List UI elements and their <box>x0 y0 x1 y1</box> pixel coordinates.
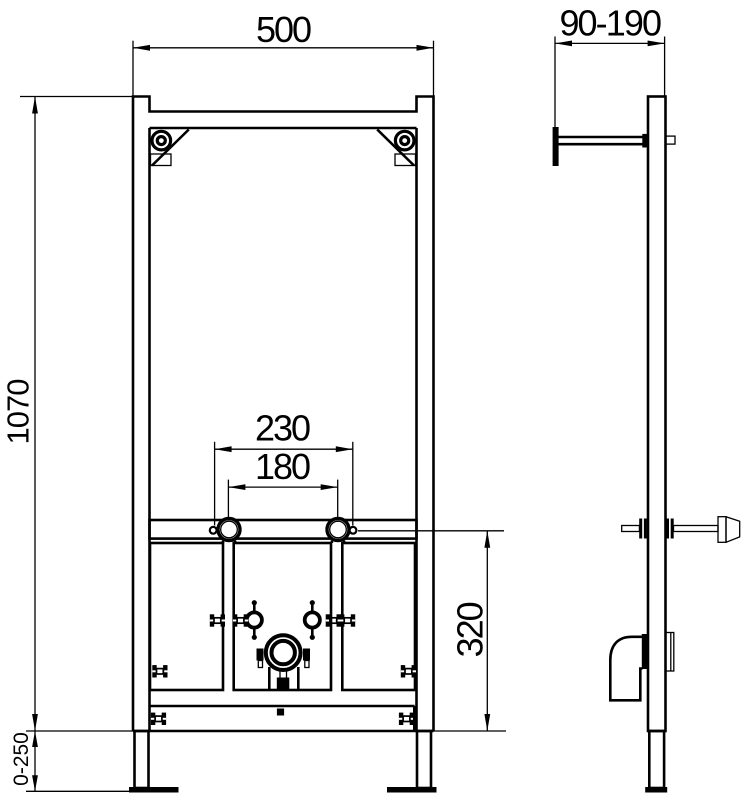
svg-text:180: 180 <box>255 446 310 487</box>
svg-text:90-190: 90-190 <box>559 3 661 44</box>
svg-text:1070: 1070 <box>1 379 36 445</box>
svg-text:0-250: 0-250 <box>10 732 33 786</box>
svg-text:500: 500 <box>256 9 311 50</box>
svg-text:320: 320 <box>449 602 490 657</box>
svg-text:230: 230 <box>255 408 310 449</box>
